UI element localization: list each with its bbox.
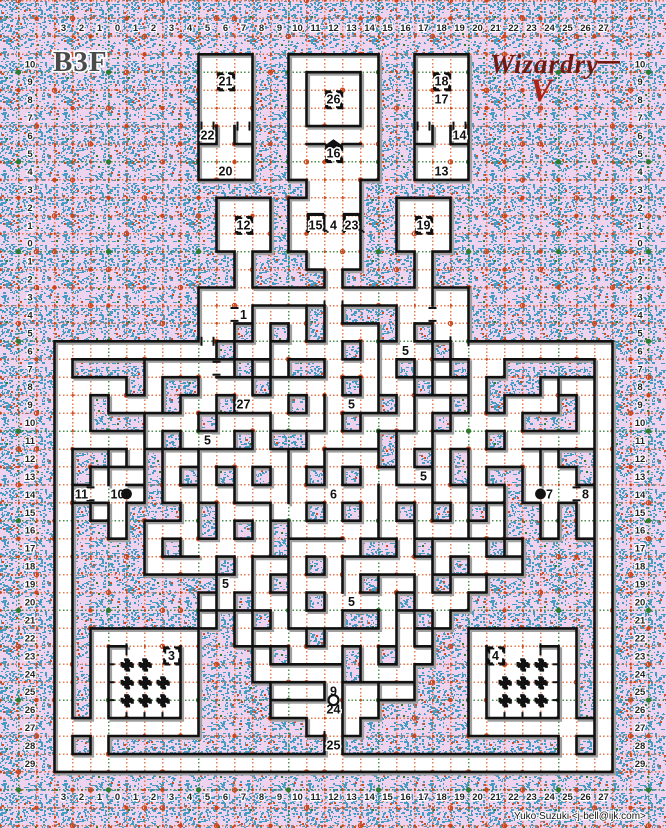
svg-text:1: 1 — [240, 308, 247, 322]
svg-text:12: 12 — [635, 454, 646, 465]
svg-text:2: 2 — [27, 203, 32, 214]
svg-text:6: 6 — [27, 131, 32, 142]
svg-text:5: 5 — [420, 469, 427, 483]
svg-text:10: 10 — [292, 23, 303, 34]
svg-text:8: 8 — [582, 487, 589, 501]
svg-text:3: 3 — [637, 293, 642, 304]
svg-text:2: 2 — [151, 23, 156, 34]
svg-text:22: 22 — [25, 633, 36, 644]
svg-text:26: 26 — [580, 23, 591, 34]
svg-text:1: 1 — [27, 221, 33, 232]
svg-text:21: 21 — [635, 615, 646, 626]
svg-text:24: 24 — [25, 669, 36, 680]
svg-text:V: V — [530, 73, 555, 109]
svg-text:6: 6 — [330, 487, 337, 501]
svg-text:4: 4 — [27, 167, 33, 178]
svg-text:11: 11 — [310, 23, 321, 34]
svg-text:29: 29 — [25, 759, 36, 770]
svg-text:5: 5 — [348, 595, 355, 609]
svg-text:9: 9 — [27, 77, 32, 88]
svg-text:20: 20 — [635, 598, 646, 609]
svg-text:27: 27 — [237, 398, 251, 412]
svg-text:18: 18 — [436, 23, 447, 34]
svg-text:6: 6 — [223, 792, 228, 803]
svg-text:3: 3 — [27, 293, 32, 304]
svg-text:13: 13 — [346, 23, 357, 34]
svg-text:9: 9 — [277, 23, 282, 34]
svg-text:26: 26 — [25, 705, 36, 716]
svg-text:5: 5 — [402, 344, 409, 358]
svg-text:16: 16 — [635, 526, 646, 537]
svg-text:26: 26 — [327, 93, 341, 107]
svg-text:14: 14 — [25, 490, 36, 501]
svg-text:15: 15 — [382, 23, 393, 34]
svg-text:18: 18 — [635, 562, 646, 573]
svg-text:13: 13 — [435, 164, 449, 178]
svg-text:8: 8 — [259, 792, 264, 803]
svg-text:19: 19 — [454, 23, 465, 34]
svg-text:20: 20 — [25, 598, 36, 609]
svg-text:3: 3 — [168, 649, 175, 663]
svg-text:B3F: B3F — [53, 46, 108, 78]
svg-text:3: 3 — [169, 792, 174, 803]
svg-text:11: 11 — [635, 436, 646, 447]
svg-text:1: 1 — [133, 792, 139, 803]
svg-text:5: 5 — [27, 328, 33, 339]
svg-text:1: 1 — [97, 792, 103, 803]
svg-text:17: 17 — [418, 792, 429, 803]
svg-text:19: 19 — [454, 792, 465, 803]
svg-text:11: 11 — [75, 487, 88, 501]
svg-text:10: 10 — [635, 418, 646, 429]
svg-text:27: 27 — [25, 723, 36, 734]
svg-text:8: 8 — [27, 95, 32, 106]
svg-text:26: 26 — [635, 705, 646, 716]
svg-text:24: 24 — [544, 792, 555, 803]
svg-text:8: 8 — [637, 382, 642, 393]
svg-text:4: 4 — [187, 23, 193, 34]
svg-text:21: 21 — [219, 75, 233, 89]
svg-text:20: 20 — [219, 164, 233, 178]
svg-text:7: 7 — [27, 113, 32, 124]
svg-text:18: 18 — [25, 562, 36, 573]
svg-text:15: 15 — [309, 218, 323, 232]
svg-text:9: 9 — [637, 400, 642, 411]
svg-text:7: 7 — [637, 364, 642, 375]
svg-text:16: 16 — [25, 526, 36, 537]
svg-text:23: 23 — [635, 651, 646, 662]
svg-text:9: 9 — [637, 77, 642, 88]
svg-text:9: 9 — [277, 792, 282, 803]
svg-text:15: 15 — [25, 508, 36, 519]
svg-text:2: 2 — [637, 275, 642, 286]
svg-text:8: 8 — [27, 382, 32, 393]
svg-text:28: 28 — [25, 741, 36, 752]
svg-text:9: 9 — [27, 400, 32, 411]
svg-text:21: 21 — [490, 792, 501, 803]
svg-text:19: 19 — [25, 580, 36, 591]
svg-text:21: 21 — [25, 615, 36, 626]
svg-text:22: 22 — [201, 129, 215, 143]
svg-text:4: 4 — [27, 311, 33, 322]
svg-text:3: 3 — [637, 185, 642, 196]
svg-text:21: 21 — [490, 23, 501, 34]
svg-text:14: 14 — [364, 792, 375, 803]
svg-text:5: 5 — [205, 23, 211, 34]
svg-text:3: 3 — [169, 23, 174, 34]
svg-text:14: 14 — [364, 23, 375, 34]
svg-text:0: 0 — [115, 792, 120, 803]
svg-text:23: 23 — [526, 792, 537, 803]
svg-text:14: 14 — [635, 490, 646, 501]
svg-text:19: 19 — [635, 580, 646, 591]
svg-text:1: 1 — [637, 221, 643, 232]
svg-text:3: 3 — [61, 792, 66, 803]
svg-text:25: 25 — [635, 687, 646, 698]
svg-text:6: 6 — [637, 346, 642, 357]
svg-text:4: 4 — [187, 792, 193, 803]
svg-text:17: 17 — [25, 544, 36, 555]
svg-text:18: 18 — [435, 75, 449, 89]
svg-text:1: 1 — [133, 23, 139, 34]
svg-text:11: 11 — [25, 436, 36, 447]
svg-text:1: 1 — [637, 257, 643, 268]
svg-text:24: 24 — [635, 669, 646, 680]
svg-text:23: 23 — [25, 651, 36, 662]
svg-text:11: 11 — [310, 792, 321, 803]
svg-text:5: 5 — [27, 149, 33, 160]
svg-text:0: 0 — [637, 239, 642, 250]
svg-text:25: 25 — [562, 23, 573, 34]
svg-text:10: 10 — [25, 59, 36, 70]
svg-text:7: 7 — [241, 792, 246, 803]
svg-text:4: 4 — [637, 311, 643, 322]
svg-text:10: 10 — [635, 59, 646, 70]
svg-text:3: 3 — [27, 185, 32, 196]
svg-text:17: 17 — [635, 544, 646, 555]
svg-text:20: 20 — [472, 792, 483, 803]
svg-text:29: 29 — [635, 759, 646, 770]
svg-text:22: 22 — [508, 23, 519, 34]
svg-text:0: 0 — [115, 23, 120, 34]
svg-text:22: 22 — [508, 792, 519, 803]
svg-text:5: 5 — [222, 577, 229, 591]
svg-text:6: 6 — [27, 346, 32, 357]
svg-text:5: 5 — [204, 434, 211, 448]
svg-text:7: 7 — [637, 113, 642, 124]
svg-text:4: 4 — [492, 649, 499, 663]
svg-text:7: 7 — [27, 364, 32, 375]
svg-text:5: 5 — [637, 149, 643, 160]
svg-text:25: 25 — [327, 739, 341, 753]
svg-text:6: 6 — [637, 131, 642, 142]
svg-text:12: 12 — [328, 792, 339, 803]
svg-text:23: 23 — [345, 218, 359, 232]
svg-text:2: 2 — [79, 792, 84, 803]
svg-text:13: 13 — [635, 472, 646, 483]
svg-text:28: 28 — [635, 741, 646, 752]
svg-text:16: 16 — [400, 23, 411, 34]
svg-text:15: 15 — [382, 792, 393, 803]
svg-text:22: 22 — [635, 633, 646, 644]
svg-text:1: 1 — [27, 257, 33, 268]
svg-text:7: 7 — [546, 487, 553, 501]
svg-text:18: 18 — [436, 792, 447, 803]
svg-text:4: 4 — [330, 218, 337, 232]
svg-text:13: 13 — [25, 472, 36, 483]
svg-text:16: 16 — [400, 792, 411, 803]
svg-text:10: 10 — [292, 792, 303, 803]
svg-text:2: 2 — [79, 23, 84, 34]
svg-text:13: 13 — [346, 792, 357, 803]
svg-text:19: 19 — [417, 218, 431, 232]
svg-text:0: 0 — [27, 239, 32, 250]
svg-text:12: 12 — [237, 218, 251, 232]
svg-text:15: 15 — [635, 508, 646, 519]
svg-text:6: 6 — [223, 23, 228, 34]
svg-text:8: 8 — [637, 95, 642, 106]
svg-text:7: 7 — [241, 23, 246, 34]
svg-text:27: 27 — [598, 792, 609, 803]
svg-text:14: 14 — [453, 129, 467, 143]
svg-text:2: 2 — [151, 792, 156, 803]
svg-text:27: 27 — [635, 723, 646, 734]
svg-text:17: 17 — [418, 23, 429, 34]
svg-text:5: 5 — [637, 328, 643, 339]
svg-text:20: 20 — [472, 23, 483, 34]
svg-text:2: 2 — [27, 275, 32, 286]
svg-text:17: 17 — [435, 93, 449, 107]
svg-text:25: 25 — [562, 792, 573, 803]
svg-text:23: 23 — [526, 23, 537, 34]
svg-text:1: 1 — [97, 23, 103, 34]
svg-text:27: 27 — [598, 23, 609, 34]
svg-text:12: 12 — [328, 23, 339, 34]
svg-text:4: 4 — [637, 167, 643, 178]
svg-text:3: 3 — [61, 23, 66, 34]
svg-text:12: 12 — [25, 454, 36, 465]
svg-text:2: 2 — [637, 203, 642, 214]
svg-text:Yuko Suzuki <j-bell@ijk.com>: Yuko Suzuki <j-bell@ijk.com> — [514, 811, 646, 822]
svg-text:8: 8 — [259, 23, 264, 34]
svg-text:10: 10 — [25, 418, 36, 429]
svg-text:5: 5 — [205, 792, 211, 803]
svg-text:24: 24 — [544, 23, 555, 34]
svg-text:5: 5 — [348, 398, 355, 412]
svg-text:25: 25 — [25, 687, 36, 698]
svg-text:26: 26 — [580, 792, 591, 803]
